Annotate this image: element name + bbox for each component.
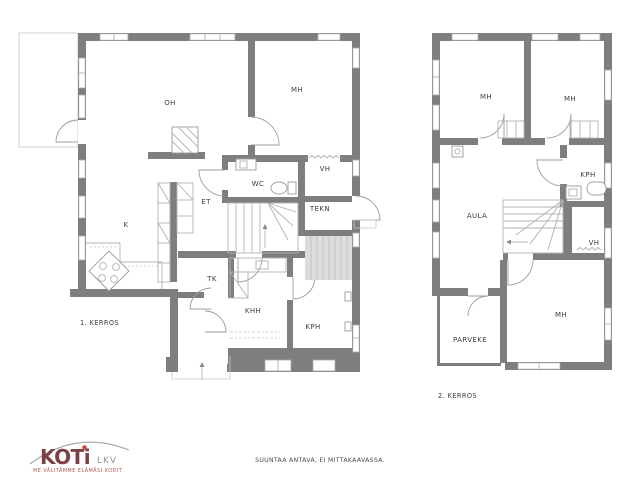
stove-icon — [89, 251, 129, 291]
mh-door — [251, 117, 279, 145]
entry-door-2 — [205, 311, 226, 332]
aula-sink-icon — [452, 146, 463, 157]
footer-note: SUUNTAA ANTAVA, EI MITTAKAAVASSA. — [255, 457, 385, 464]
kitchen-cabinets — [158, 183, 170, 282]
kph2-sink-icon — [566, 186, 581, 199]
hall-khh-door — [238, 258, 262, 282]
fireplace-icon — [172, 127, 198, 153]
room-label-kph2: KPH — [580, 171, 595, 179]
kph2-bathtub-icon — [587, 182, 606, 195]
parveke-door — [468, 296, 488, 316]
logo-suffix-text: LKV — [97, 456, 117, 466]
stairs2-arrow — [506, 240, 511, 245]
room-label-k: K — [124, 221, 129, 229]
room-label-tekn: TEKN — [309, 205, 330, 213]
floor1-stairs — [228, 203, 298, 253]
wc-sink-icon — [236, 159, 256, 170]
wc-door — [199, 170, 225, 196]
entry-porch — [172, 356, 230, 380]
terrace-door-gap — [78, 120, 86, 144]
kph-fitting-2 — [345, 322, 351, 331]
floor1-windows — [79, 34, 359, 371]
vh2-rail-icon — [577, 247, 601, 250]
floor2-plan: MH MH KPH AULA VH MH PARVEKE 2. KERROS — [432, 33, 612, 400]
logo-i-dot — [82, 445, 87, 450]
mh-top-right-door — [547, 114, 571, 138]
vh-rail-icon — [309, 155, 339, 158]
room-label-parveke: PARVEKE — [453, 336, 487, 344]
room-label-aula: AULA — [467, 212, 487, 220]
kph2-door — [537, 160, 563, 186]
kph-door — [293, 277, 315, 299]
mh-top-left-door — [480, 114, 504, 138]
logo-tagline-text: ME VÄLITÄMME ELÄMÄSI KODIT — [33, 467, 122, 474]
room-label-mh: MH — [291, 86, 303, 94]
stairs-up-arrow — [263, 224, 268, 229]
room-label-vh: VH — [320, 165, 331, 173]
room-label-mh-top-right: MH — [564, 95, 576, 103]
entry-door-1 — [190, 288, 211, 309]
mh2-closet — [570, 121, 598, 138]
room-label-et: ET — [201, 198, 211, 206]
floorplan-drawing: OH MH VH WC TEKN ET K TK KHH KPH 1. KERR… — [0, 0, 640, 480]
floor1-caption: 1. KERROS — [80, 319, 119, 327]
wc-toilet-icon — [271, 182, 296, 194]
et-closet — [177, 183, 193, 233]
room-label-wc: WC — [252, 180, 265, 188]
room-label-vh2: VH — [589, 239, 600, 247]
floor1-plan: OH MH VH WC TEKN ET K TK KHH KPH 1. KERR… — [19, 33, 380, 380]
kph-fitting-1 — [345, 292, 351, 301]
floor2-caption: 2. KERROS — [438, 392, 477, 400]
room-label-khh: KHH — [245, 307, 261, 315]
terrace-outline — [19, 33, 78, 147]
floor1-doors — [56, 117, 380, 332]
room-label-mh-bottom: MH — [555, 311, 567, 319]
room-label-tk: TK — [206, 275, 217, 283]
room-label-mh-top-left: MH — [480, 93, 492, 101]
floor2-stairs — [503, 200, 563, 253]
floor1-deck — [305, 236, 352, 280]
room-label-kph: KPH — [305, 323, 320, 331]
koti-lkv-logo: KOTi LKV ME VÄLITÄMME ELÄMÄSI KODIT — [30, 442, 129, 474]
mh-bottom-door — [508, 260, 533, 285]
tekn-door-gap — [352, 196, 360, 220]
floorplan-page: OH MH VH WC TEKN ET K TK KHH KPH 1. KERR… — [0, 0, 640, 480]
floor2-walls — [432, 33, 612, 370]
room-label-oh: OH — [164, 99, 176, 107]
terrace-door — [56, 120, 78, 142]
